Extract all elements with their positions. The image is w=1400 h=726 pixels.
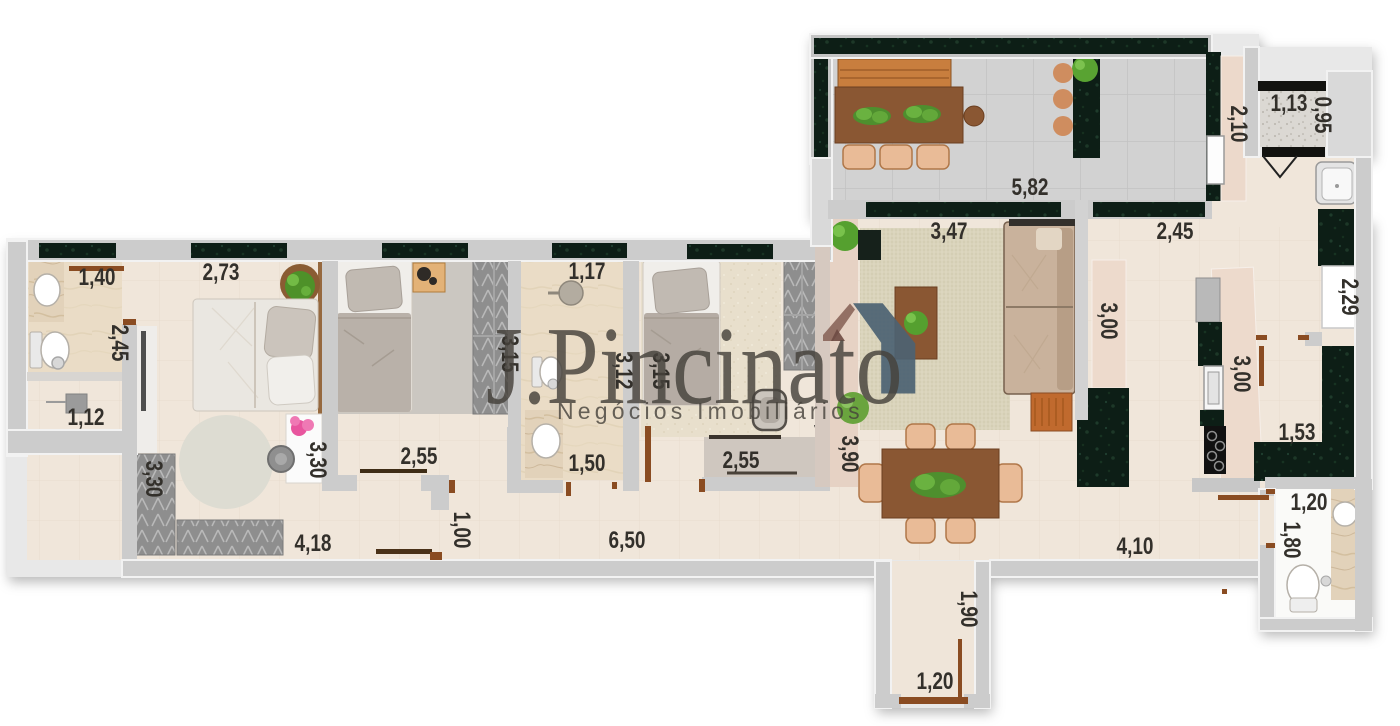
svg-text:2,45: 2,45 [106, 325, 133, 362]
svg-text:1,90: 1,90 [955, 591, 982, 628]
svg-text:1,00: 1,00 [448, 512, 475, 549]
svg-text:2,55: 2,55 [401, 443, 438, 470]
svg-text:1,13: 1,13 [1271, 90, 1308, 117]
svg-text:Negócios Imobiliários: Negócios Imobiliários [557, 398, 864, 424]
svg-text:3,30: 3,30 [304, 442, 331, 479]
svg-text:3,47: 3,47 [931, 218, 968, 245]
svg-text:3,00: 3,00 [1228, 356, 1255, 393]
svg-text:1,40: 1,40 [79, 264, 116, 291]
svg-text:1,12: 1,12 [68, 404, 105, 431]
svg-text:1,20: 1,20 [917, 668, 954, 695]
svg-text:1,50: 1,50 [569, 450, 606, 477]
svg-text:3,30: 3,30 [140, 461, 167, 498]
svg-text:1,53: 1,53 [1279, 419, 1316, 446]
svg-text:2,55: 2,55 [723, 447, 760, 474]
svg-text:1,17: 1,17 [569, 258, 606, 285]
svg-text:4,18: 4,18 [295, 530, 332, 557]
svg-text:1,80: 1,80 [1278, 522, 1305, 559]
svg-text:2,73: 2,73 [203, 259, 240, 286]
svg-text:1,20: 1,20 [1291, 489, 1328, 516]
svg-text:2,45: 2,45 [1157, 218, 1194, 245]
svg-text:2,10: 2,10 [1225, 106, 1252, 143]
svg-text:2,29: 2,29 [1336, 279, 1363, 316]
svg-text:3,00: 3,00 [1095, 303, 1122, 340]
svg-text:6,50: 6,50 [609, 527, 646, 554]
svg-text:5,82: 5,82 [1012, 174, 1049, 201]
svg-text:3,90: 3,90 [836, 436, 863, 473]
svg-text:4,10: 4,10 [1117, 533, 1154, 560]
svg-text:0,95: 0,95 [1309, 97, 1336, 134]
